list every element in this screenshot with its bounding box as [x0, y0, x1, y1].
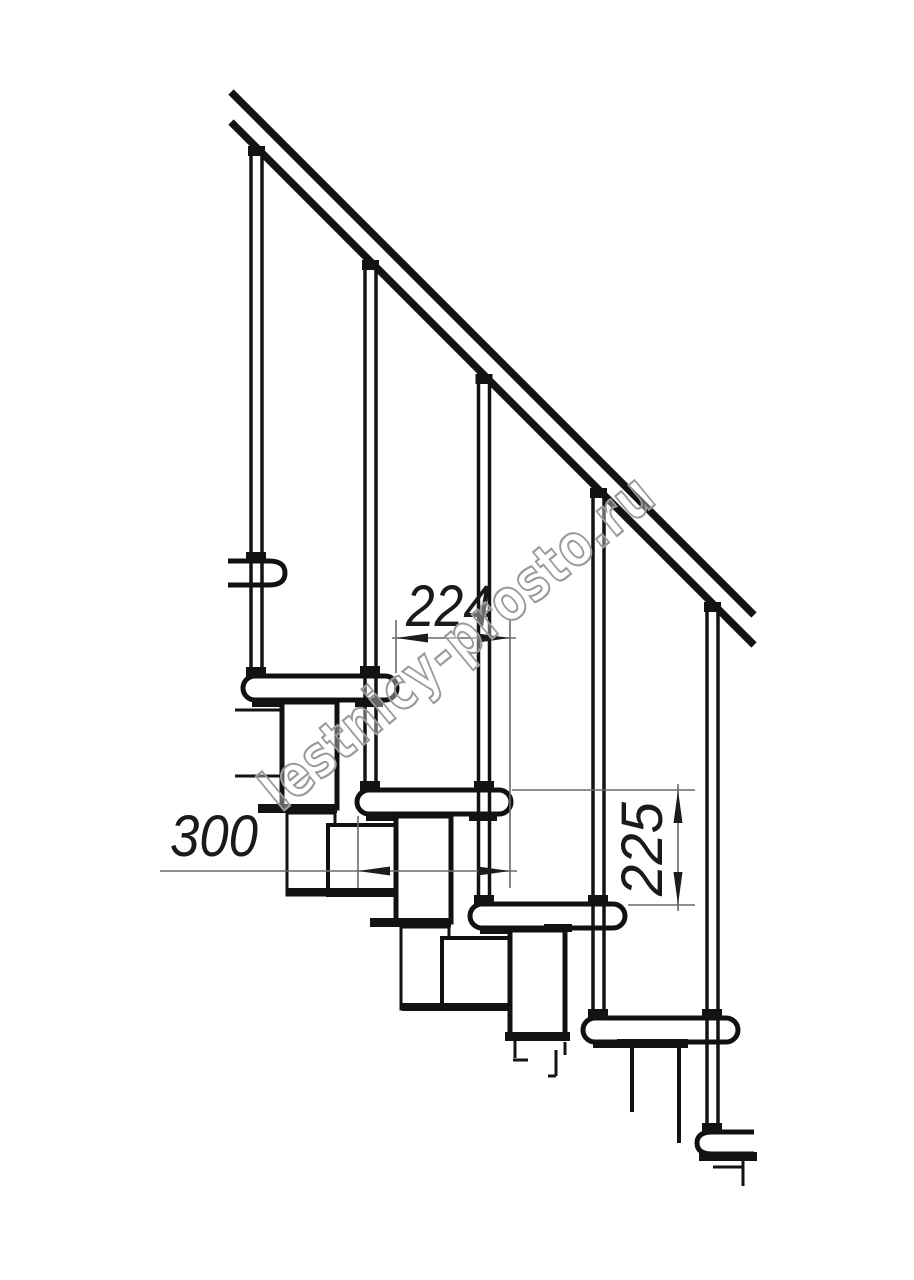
spine-base-bar-2: [402, 1003, 517, 1011]
rail-cap-5: [704, 602, 721, 612]
spine-junction-2: [442, 938, 519, 1008]
bracket: [480, 926, 508, 934]
rail-cap-3: [476, 374, 493, 384]
tread-collar: [246, 667, 266, 677]
spine-module-vertical-2: [396, 816, 451, 922]
spine-junction-1: [328, 825, 405, 895]
bracket: [593, 1040, 619, 1048]
spine-flange-3: [505, 1032, 570, 1041]
bracket-under-tread-6: [699, 1152, 757, 1161]
rail-cap-2: [362, 260, 379, 270]
tread-collar: [474, 781, 494, 791]
tread-1: [228, 561, 285, 585]
rail-cap-1: [248, 146, 265, 156]
dimension-rise-value: 225: [610, 801, 675, 897]
spine-module-vertical-3: [510, 930, 565, 1036]
bracket: [366, 812, 394, 821]
bracket: [252, 698, 280, 707]
tread-collar: [246, 552, 266, 562]
tread-collar: [588, 895, 608, 905]
tread-5: [583, 1018, 738, 1042]
tread-collar: [588, 1009, 608, 1019]
tread-collar: [474, 895, 494, 905]
dimension-tread-depth-value: 300: [170, 804, 258, 869]
spine-base-bar-1: [287, 888, 404, 896]
tread-collar: [702, 1009, 722, 1019]
tread-collar: [360, 781, 380, 791]
bracket: [469, 812, 497, 821]
staircase-technical-drawing: 224 300 225 lestnicy-prosto.ru: [0, 0, 914, 1280]
drawing-svg: 224 300 225 lestnicy-prosto.ru: [0, 0, 914, 1280]
tread-collar: [702, 1123, 722, 1133]
tread-6: [697, 1132, 754, 1154]
